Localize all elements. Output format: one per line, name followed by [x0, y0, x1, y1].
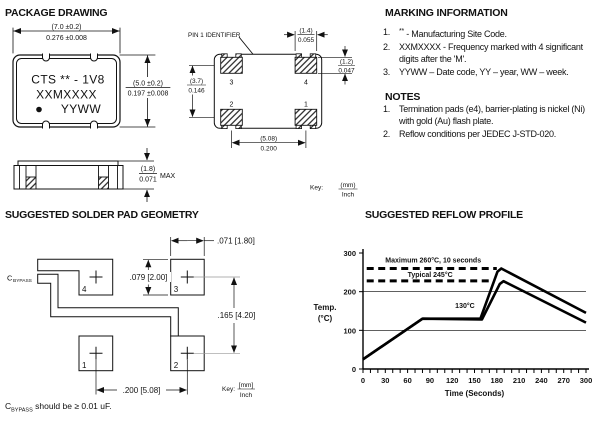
x-tick-label: 240: [535, 376, 548, 385]
geo-pad-2-label: 2: [174, 361, 179, 370]
y-tick-label: 200: [343, 288, 356, 297]
marking-line-1: CTS ** - 1V8: [31, 73, 105, 87]
dim-geo-pad-height: .079 [2.00]: [130, 273, 168, 282]
pad-2-label: 2: [230, 102, 234, 109]
cbypass-label-sub: BYPASS: [13, 278, 32, 284]
dim-height-mm: (5.0 ±0.2): [133, 81, 163, 88]
y-axis-label: Temp.: [314, 303, 337, 312]
x-axis-label: Time (Seconds): [445, 389, 505, 398]
dim-geo-vpitch: .165 [4.20]: [218, 311, 256, 320]
reflow-profile-title: SUGGESTED REFLOW PROFILE: [365, 209, 523, 221]
x-tick-label: 300: [580, 376, 593, 385]
reference-line-label: Maximum 260°C, 10 seconds: [385, 256, 481, 264]
y-tick-label: 100: [343, 326, 356, 335]
x-tick-label: 60: [403, 376, 411, 385]
max-label: MAX: [160, 173, 176, 180]
pin1-identifier-label: PIN 1 IDENTIFIER: [188, 32, 241, 39]
front-view-drawing: (7.0 ±0.2) 0.276 ±0.008 CTS ** - 1V8 XXM…: [13, 24, 172, 128]
land-pattern-drawing: PIN 1 IDENTIFIER 3 4 2: [185, 28, 358, 199]
geo-pad-4-label: 4: [82, 285, 87, 294]
x-tick-label: 150: [468, 376, 481, 385]
item-number: 3.: [383, 66, 399, 78]
list-item: 1. ** - Manufacturing Site Code.: [383, 26, 600, 40]
y-tick-label: 300: [343, 249, 356, 258]
solder-pad-section: [99, 177, 109, 189]
dim-width-inch: 0.276 ±0.008: [46, 35, 87, 42]
x-tick-label: 120: [446, 376, 459, 385]
list-item: 3. YYWW – Date code, YY – year, WW – wee…: [383, 66, 600, 78]
marking-line-2: XXMXXXX: [36, 88, 97, 102]
dim-pad-vpitch-inch: 0.146: [188, 88, 205, 95]
solder-pad-section: [26, 177, 36, 189]
x-tick-label: 30: [381, 376, 389, 385]
x-tick-label: 180: [491, 376, 504, 385]
list-item: 2. Reflow conditions per JEDEC J-STD-020…: [383, 128, 600, 140]
notes-list: 1. Termination pads (e4), barrier-platin…: [383, 103, 600, 141]
item-text: Termination pads (e4), barrier-plating i…: [399, 103, 600, 127]
reflow-chart: 01002003000306090120150180210240270300Ma…: [305, 243, 600, 403]
item-number: 1.: [383, 103, 399, 127]
dim-geo-pad-width: .071 [1.80]: [217, 237, 255, 246]
pad-3-label: 3: [230, 80, 234, 87]
note-sub: BYPASS: [11, 408, 33, 414]
y-tick-label: 0: [352, 365, 356, 374]
key-label: Key:: [310, 185, 323, 192]
marking-information-list: 1. ** - Manufacturing Site Code. 2. XXMX…: [383, 26, 600, 79]
key-label: Key:: [222, 386, 235, 393]
dim-width-mm: (7.0 ±0.2): [52, 24, 82, 31]
solder-pad-drawing: 4 3 1 2 C BYPASS .071 [1.80] .079 [2.00]: [7, 237, 255, 400]
land-pad-1: [295, 109, 317, 125]
dim-pad-height-inch: 0.047: [338, 68, 355, 75]
typical-profile: [363, 281, 586, 359]
item-number: 1.: [383, 26, 399, 40]
x-tick-label: 210: [513, 376, 526, 385]
dim-pad-hpitch-mm: (5.08): [260, 136, 277, 143]
x-tick-label: 90: [426, 376, 434, 385]
land-pad-4: [295, 57, 317, 73]
item-rest: - Manufacturing Site Code.: [404, 29, 507, 39]
land-pad-2: [221, 109, 243, 125]
side-view-drawing: (1.8) 0.071 MAX: [14, 148, 176, 202]
key-inch: Inch: [342, 192, 355, 199]
datasheet-page: PACKAGE DRAWING MARKING INFORMATION NOTE…: [0, 0, 600, 426]
item-text: Reflow conditions per JEDEC J-STD-020.: [399, 128, 556, 140]
x-tick-label: 0: [361, 376, 365, 385]
notes-title: NOTES: [385, 91, 420, 103]
item-text: XXMXXXX - Frequency marked with 4 signif…: [399, 41, 600, 65]
pad-1-label: 1: [304, 102, 308, 109]
dim-thickness-inch: 0.071: [139, 177, 157, 184]
package-drawing-canvas: (7.0 ±0.2) 0.276 ±0.008 CTS ** - 1V8 XXM…: [0, 20, 380, 212]
marking-line-3: YYWW: [61, 102, 102, 116]
pin1-dot: [36, 107, 42, 113]
geo-pad-1-label: 1: [82, 361, 87, 370]
dim-pad-width-inch: 0.055: [298, 37, 315, 44]
pad-4-label: 4: [304, 80, 308, 87]
item-text: YYWW – Date code, YY – year, WW – week.: [399, 66, 569, 78]
item-text: ** - Manufacturing Site Code.: [399, 26, 507, 40]
package-drawing-title: PACKAGE DRAWING: [5, 7, 107, 19]
dim-pad-width-mm: (1.4): [299, 28, 312, 35]
list-item: 1. Termination pads (e4), barrier-platin…: [383, 103, 600, 127]
key-mm: (mm): [340, 182, 355, 189]
annotation: 130°C: [455, 302, 475, 310]
dim-pad-height-mm: (1.2): [340, 59, 353, 66]
dim-geo-hpitch: .200 [5.08]: [123, 386, 161, 395]
land-pad-3: [221, 57, 243, 73]
y-axis-label-2: (°C): [318, 314, 333, 323]
note-rest: should be ≥ 0.01 uF.: [33, 401, 112, 411]
dim-pad-hpitch-inch: 0.200: [261, 146, 278, 153]
dim-pad-vpitch-mm: (3.7): [190, 78, 203, 85]
cbypass-note: CBYPASS should be ≥ 0.01 uF.: [5, 401, 112, 414]
marking-information-title: MARKING INFORMATION: [385, 7, 508, 19]
dim-thickness-mm: (1.8): [141, 166, 155, 173]
dim-height-inch: 0.197 ±0.008: [128, 91, 169, 98]
key-inch: Inch: [240, 392, 253, 399]
reference-line-label: Typical 245°C: [408, 271, 453, 279]
solder-pad-canvas: 4 3 1 2 C BYPASS .071 [1.80] .079 [2.00]: [0, 228, 270, 403]
x-tick-label: 270: [557, 376, 570, 385]
list-item: 2. XXMXXXX - Frequency marked with 4 sig…: [383, 41, 600, 65]
item-number: 2.: [383, 128, 399, 140]
geo-pad-3-label: 3: [174, 285, 179, 294]
key-mm: [mm]: [239, 382, 254, 389]
item-number: 2.: [383, 41, 399, 65]
